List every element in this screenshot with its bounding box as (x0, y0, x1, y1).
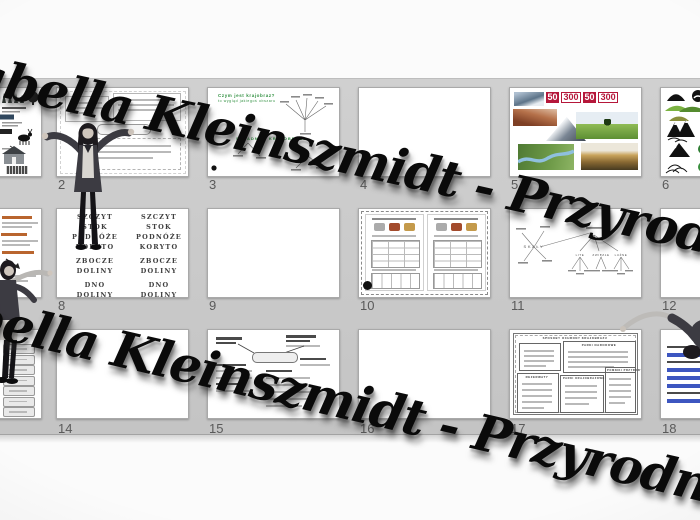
slide17-box-title: REZERWATY (521, 375, 553, 379)
presenter-figure-reaching (618, 296, 700, 426)
field-tree (604, 119, 611, 127)
badge-300: 300 (561, 92, 581, 103)
badge-50: 50 (546, 92, 559, 103)
slide11-group-label: LUŹNE (610, 253, 632, 257)
photo-brown-mountains (513, 109, 557, 126)
answer-button (3, 386, 35, 396)
slide17-box-title: PARKI KRAJOBRAZOWE (563, 377, 599, 380)
worksheet-box: REZERWATY (517, 373, 559, 413)
worksheet-panel (365, 214, 424, 291)
photo-mountain-ridge (514, 92, 544, 106)
photo-green-field (576, 112, 638, 139)
slide-sorter-window: Czym jest krajobraz? to wygląd jakiegoś … (0, 0, 700, 520)
page-badge (363, 281, 372, 290)
altitude-badges: 50 300 50 300 (546, 92, 618, 103)
presenter-figure-standing (38, 116, 138, 256)
slide-thumbnail-5[interactable]: 50 300 50 300 (509, 87, 642, 177)
slide-number: 9 (209, 298, 216, 313)
slide-thumbnail-10[interactable] (358, 208, 491, 298)
answer-button (3, 397, 35, 407)
slide-number: 6 (662, 177, 669, 192)
slide11-root-label: SKAŁY (518, 244, 550, 249)
slide-thumbnail-9[interactable] (207, 208, 340, 298)
worksheet-box: PARKI KRAJOBRAZOWE (560, 375, 604, 413)
slide-thumbnail-6[interactable] (660, 87, 700, 177)
slide-number: 11 (511, 298, 525, 313)
mountain-icons (665, 89, 700, 175)
photo-dusk-field (581, 143, 638, 170)
badge-50: 50 (583, 92, 596, 103)
answer-button (3, 407, 35, 417)
slide-number: 10 (360, 298, 374, 313)
slide-number: 15 (209, 421, 223, 436)
slide11-group-label: LITE (569, 253, 591, 257)
slide-number: 14 (58, 421, 72, 436)
terms-column-right: SZCZYTSTOK PODNÓŻEKORYTO ZBOCZEDOLINY DN… (129, 212, 189, 298)
slide11-group-label: ZWIĘZŁE (590, 253, 612, 257)
slide17-title: SPOSOBY OCHRONY KRAJOBRAZU (530, 336, 620, 340)
badge-300: 300 (598, 92, 618, 103)
slide-number: 3 (209, 177, 216, 192)
worksheet-box (519, 343, 561, 371)
worksheet-panel (427, 214, 486, 291)
